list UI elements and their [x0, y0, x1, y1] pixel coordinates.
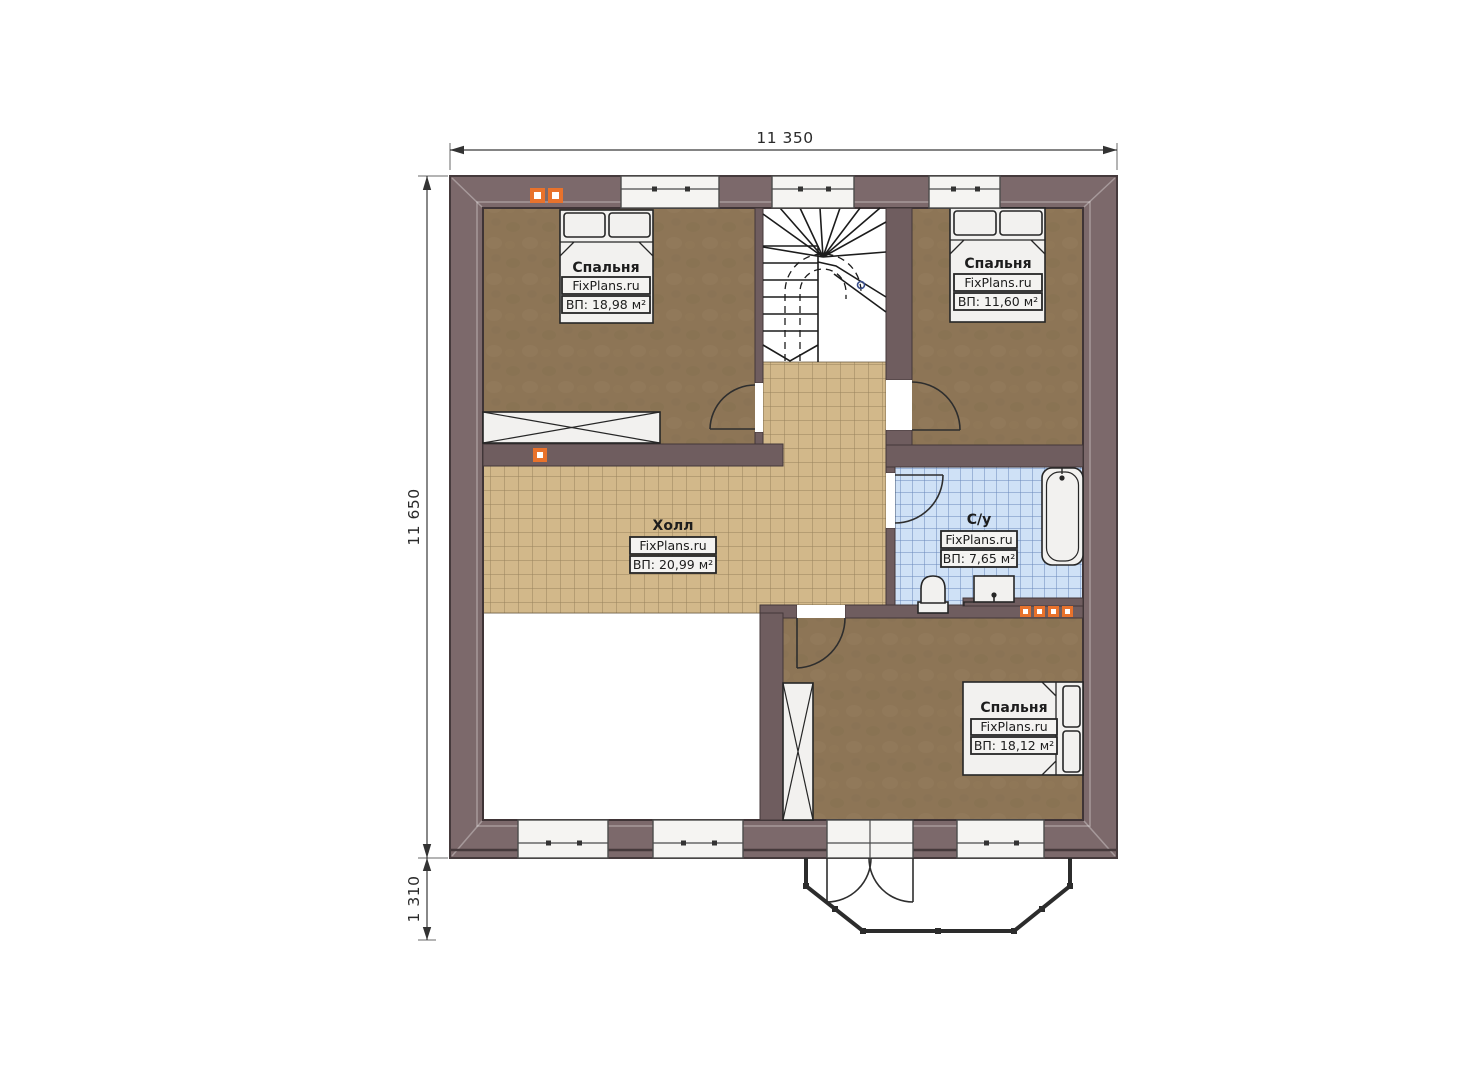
balcony-door: [827, 820, 913, 902]
area-label: ВП: 20,99 м²: [633, 557, 713, 572]
wardrobe-top-left: [483, 412, 660, 443]
brand-label: FixPlans.ru: [639, 538, 706, 553]
room-title: Спальня: [964, 256, 1031, 272]
toilet: [918, 576, 948, 613]
balcony: [803, 858, 1073, 934]
room-title: С/у: [967, 512, 992, 528]
brand-label: FixPlans.ru: [980, 719, 1047, 734]
open-void-room: [483, 613, 760, 820]
window: [518, 820, 608, 858]
area-label: ВП: 18,98 м²: [566, 297, 646, 312]
room-title: Холл: [653, 518, 694, 534]
dimension-bottom-left: 1 310: [405, 858, 436, 940]
bathtub: [1042, 468, 1083, 565]
floor-plan-drawing: Спальня FixPlans.ru ВП: 18,98 м² Спальня…: [0, 0, 1473, 1080]
dimension-offset-label: 1 310: [405, 876, 423, 923]
area-label: ВП: 11,60 м²: [958, 294, 1038, 309]
window: [772, 176, 854, 208]
brand-label: FixPlans.ru: [572, 278, 639, 293]
room-title: Спальня: [980, 700, 1047, 716]
room-label-bedroom-bottom: Спальня FixPlans.ru ВП: 18,12 м²: [971, 700, 1057, 754]
room-title: Спальня: [572, 260, 639, 276]
dimension-top: 11 350: [450, 129, 1117, 170]
dimension-left: 11 650: [405, 176, 448, 858]
vent-icon: [533, 448, 547, 462]
wardrobe-bottom: [783, 683, 813, 820]
dimension-height-label: 11 650: [405, 488, 423, 545]
window: [653, 820, 743, 858]
room-label-bedroom-top-right: Спальня FixPlans.ru ВП: 11,60 м²: [954, 256, 1042, 310]
area-label: ВП: 7,65 м²: [943, 551, 1015, 566]
area-label: ВП: 18,12 м²: [974, 738, 1054, 753]
window: [957, 820, 1044, 858]
window: [621, 176, 719, 208]
brand-label: FixPlans.ru: [945, 532, 1012, 547]
room-label-bedroom-top-left: Спальня FixPlans.ru ВП: 18,98 м²: [562, 260, 650, 313]
window: [929, 176, 1000, 208]
floor-plan-page: Спальня FixPlans.ru ВП: 18,98 м² Спальня…: [0, 0, 1473, 1080]
brand-label: FixPlans.ru: [964, 275, 1031, 290]
dimension-width-label: 11 350: [756, 129, 813, 147]
